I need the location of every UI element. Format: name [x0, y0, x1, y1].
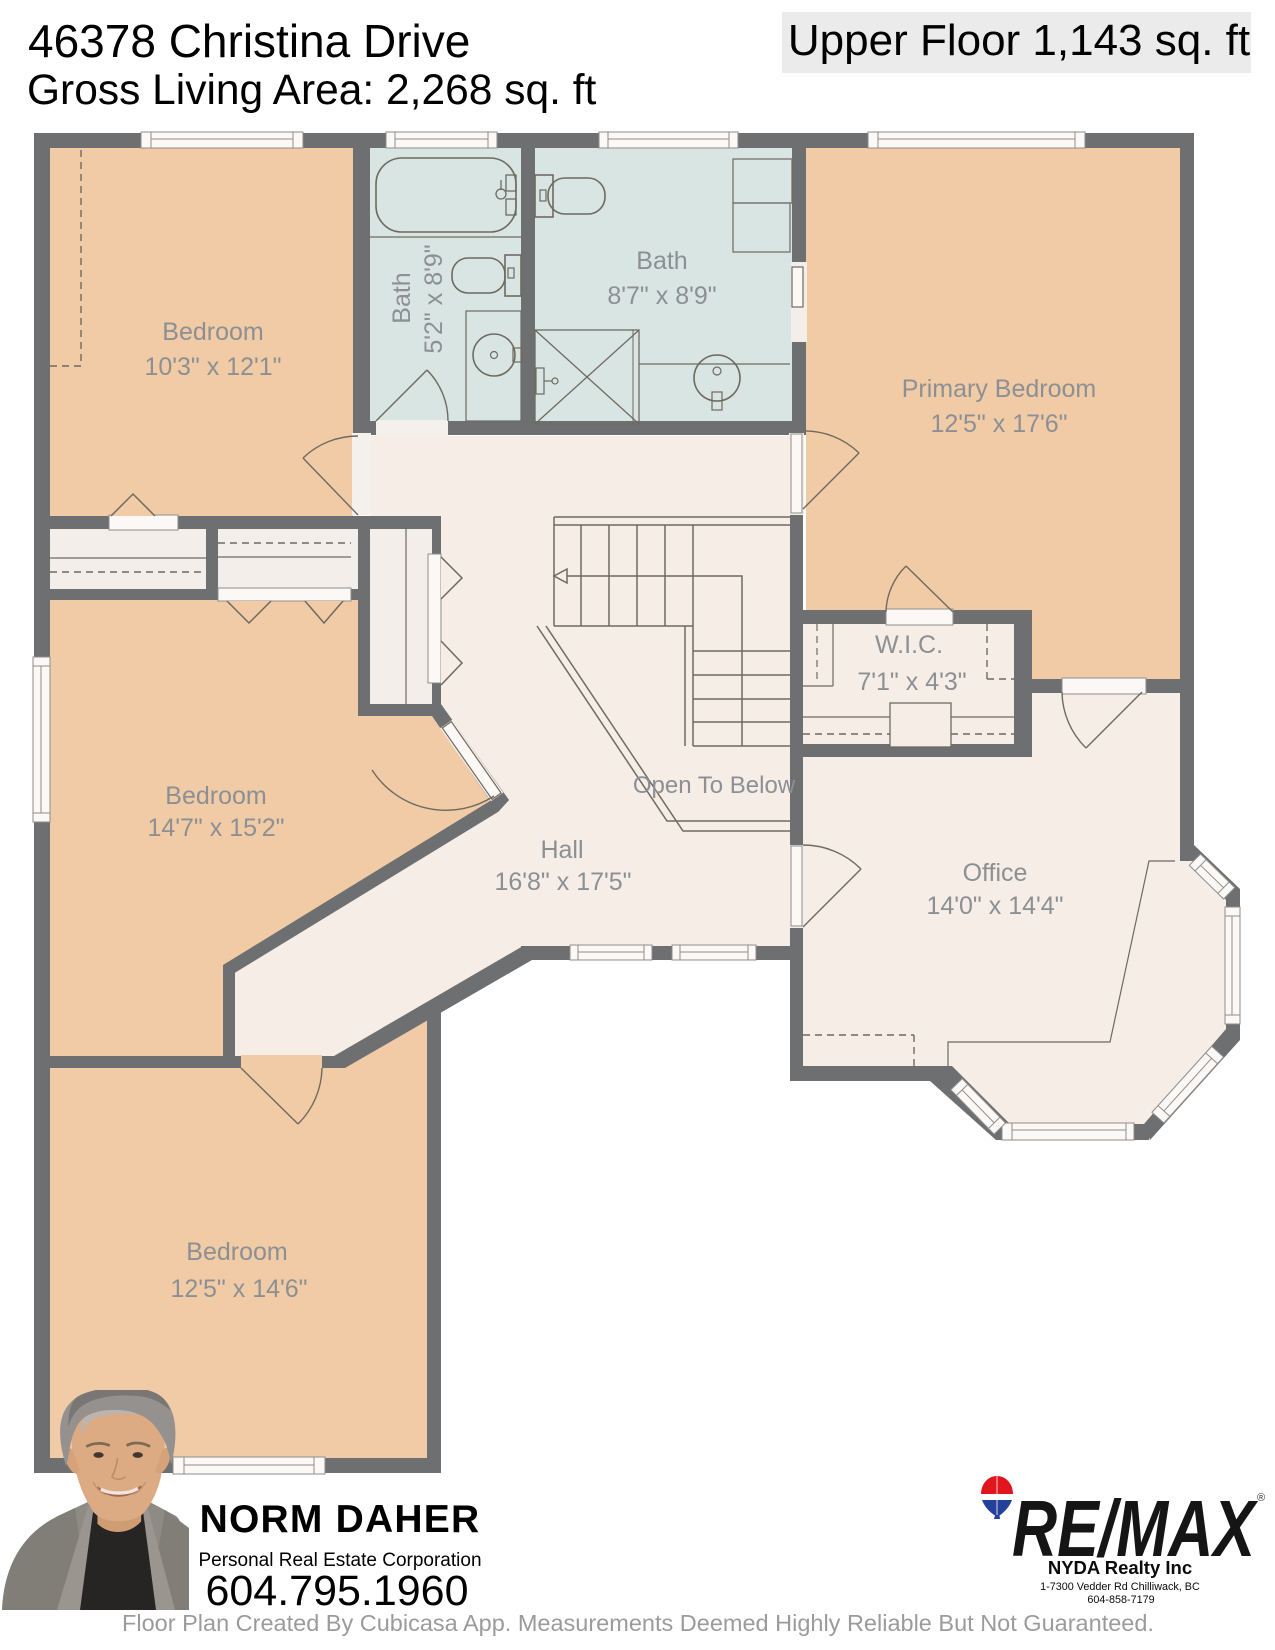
- svg-text:Office: Office: [963, 859, 1028, 887]
- svg-text:Bedroom: Bedroom: [186, 1238, 287, 1266]
- svg-text:Gross Living Area: 2,268 sq. f: Gross Living Area: 2,268 sq. ft: [27, 67, 597, 114]
- svg-text:Upper Floor 1,143 sq. ft: Upper Floor 1,143 sq. ft: [788, 16, 1250, 65]
- svg-text:W.I.C.: W.I.C.: [875, 631, 943, 659]
- svg-text:Bedroom: Bedroom: [162, 318, 263, 346]
- svg-text:Open To Below: Open To Below: [633, 772, 796, 799]
- svg-text:8'7" x 8'9": 8'7" x 8'9": [607, 282, 716, 310]
- svg-text:7'1" x 4'3": 7'1" x 4'3": [857, 668, 966, 696]
- svg-text:10'3" x 12'1": 10'3" x 12'1": [144, 353, 281, 381]
- svg-text:®: ®: [1257, 1492, 1265, 1504]
- svg-text:14'7" x 15'2": 14'7" x 15'2": [147, 814, 284, 842]
- svg-text:NORM DAHER: NORM DAHER: [200, 1498, 481, 1541]
- svg-text:14'0" x 14'4": 14'0" x 14'4": [926, 892, 1063, 920]
- svg-text:Primary Bedroom: Primary Bedroom: [902, 375, 1097, 403]
- svg-text:604.795.1960: 604.795.1960: [205, 1567, 468, 1615]
- svg-text:12'5" x 17'6": 12'5" x 17'6": [930, 410, 1067, 438]
- svg-text:1-7300 Vedder Rd Chilliwack, B: 1-7300 Vedder Rd Chilliwack, BC: [1040, 1581, 1200, 1593]
- svg-text:NYDA Realty Inc: NYDA Realty Inc: [1048, 1557, 1192, 1578]
- svg-text:5'2" x 8'9": 5'2" x 8'9": [420, 244, 448, 353]
- svg-text:16'8" x 17'5": 16'8" x 17'5": [494, 868, 631, 896]
- svg-text:Bath: Bath: [636, 247, 687, 275]
- svg-text:Hall: Hall: [540, 836, 583, 864]
- svg-text:46378 Christina Drive: 46378 Christina Drive: [28, 15, 470, 67]
- svg-text:Floor Plan Created By Cubicasa: Floor Plan Created By Cubicasa App. Meas…: [122, 1610, 1154, 1636]
- svg-text:12'5" x 14'6": 12'5" x 14'6": [170, 1275, 307, 1303]
- svg-text:Bedroom: Bedroom: [165, 782, 266, 810]
- svg-text:Bath: Bath: [388, 272, 416, 323]
- svg-text:604-858-7179: 604-858-7179: [1087, 1594, 1154, 1606]
